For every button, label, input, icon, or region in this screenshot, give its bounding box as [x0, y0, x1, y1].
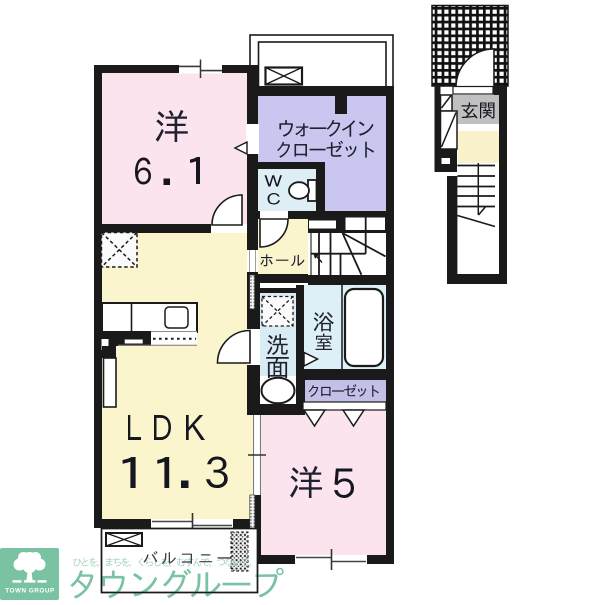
- svg-text:TOWN GROUP: TOWN GROUP: [5, 588, 54, 595]
